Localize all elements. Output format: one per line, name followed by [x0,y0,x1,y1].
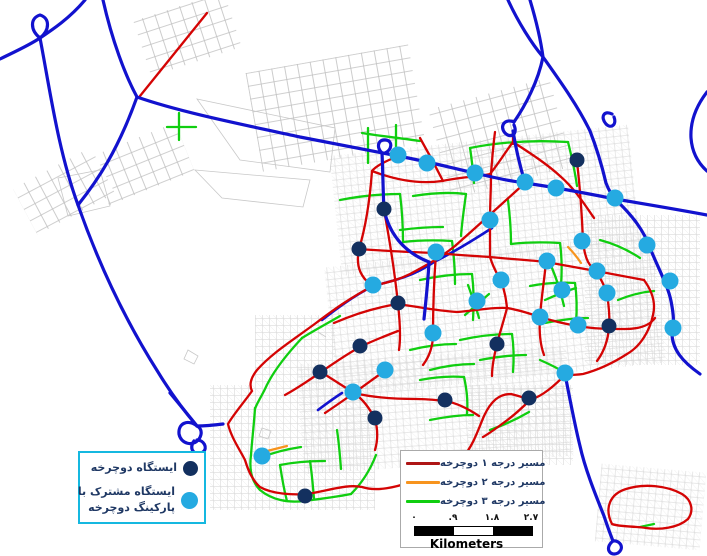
shared-station-dot [599,285,616,302]
shared-station-dot [517,174,534,191]
parcel-outline [195,170,310,207]
shared-station-dot [589,263,606,280]
highway-path [33,15,48,38]
bike-station-dot [570,153,585,168]
route-grade1-label: مسیر درجه ۱ دوچرخه [440,458,545,469]
map-screenshot: ایستگاه دوچرخه ایستگاه مشترک با پارکینگ … [0,0,707,556]
bike-station-dot-icon [183,461,198,476]
scale-tick-0: ۰ [411,513,417,523]
routes-legend: مسیر درجه ۱ دوچرخه مسیر درجه ۲ دوچرخه مس… [400,450,543,548]
route-grade3-label: مسیر درجه ۳ دوچرخه [440,496,545,507]
highway-path [197,424,223,426]
scale-bar-segment [454,527,493,535]
bike-station-dot [391,296,406,311]
shared-station-dot [539,253,556,270]
route-grade2-line-icon [406,481,440,484]
shared-station-dot [574,233,591,250]
shared-station-dot [365,277,382,294]
bike-station-dot [490,337,505,352]
shared-station-dot [428,244,445,261]
route-grade1-legend-row: مسیر درجه ۱ دوچرخه [406,454,537,473]
scale-bar: ۰ .۹ ۱.۸ ۲.۷ Kilometers [406,513,537,553]
shared-station-dot [665,320,682,337]
scale-tick-18: ۱.۸ [485,513,499,523]
shared-station-dot [493,272,510,289]
scale-bar-segments [414,526,533,536]
shared-station-dot-icon [181,492,198,509]
scale-unit-label: Kilometers [406,537,527,551]
shared-station-dot [482,212,499,229]
shared-station-dot [469,293,486,310]
route-grade3-line-icon [406,500,440,503]
bike-station-dot [438,393,453,408]
scale-tick-27: ۲.۷ [524,513,538,523]
shared-station-dot [390,147,407,164]
shared-station-dot [377,362,394,379]
shared-station-dot [345,384,362,401]
parcel-outline [184,350,198,364]
shared-station-dot [532,309,549,326]
highway-path [40,38,197,426]
station-legend-row: ایستگاه دوچرخه [84,460,198,477]
bike-station-dot [522,391,537,406]
shared-station-dot [419,155,436,172]
shared-station-dot [662,273,679,290]
shared-station-legend-row: ایستگاه مشترک با پارکینگ دوچرخه [84,484,198,517]
route-grade2-legend-row: مسیر درجه ۲ دوچرخه [406,473,537,492]
bike-station-dot [602,319,617,334]
scale-bar-segment [415,527,454,535]
shared-station-dot [254,448,271,465]
shared-station-label: ایستگاه مشترک با پارکینگ دوچرخه [78,484,175,517]
bike-station-dot [352,242,367,257]
bike-station-dot [368,411,383,426]
shared-station-dot [554,282,571,299]
shared-station-dot [548,180,565,197]
bike-station-dot [353,339,368,354]
route-grade3-legend-row: مسیر درجه ۳ دوچرخه [406,492,537,511]
stations-legend: ایستگاه دوچرخه ایستگاه مشترک با پارکینگ … [78,451,206,524]
shared-station-dot [639,237,656,254]
route-grade1-line-icon [406,462,440,465]
shared-station-dot [570,317,587,334]
shared-station-dot [557,365,574,382]
bike-station-dot [313,365,328,380]
highway-path [691,92,707,171]
highway-path [170,393,197,426]
bike-station-dot [377,202,392,217]
shared-station-dot [607,190,624,207]
scale-bar-segment [493,527,532,535]
bike-station-label: ایستگاه دوچرخه [91,460,177,477]
route-grade2-label: مسیر درجه ۲ دوچرخه [440,477,545,488]
shared-station-dot [467,165,484,182]
scale-tick-09: .۹ [449,513,458,523]
highway-path [603,113,615,126]
shared-station-dot [425,325,442,342]
bike-station-dot [298,489,313,504]
